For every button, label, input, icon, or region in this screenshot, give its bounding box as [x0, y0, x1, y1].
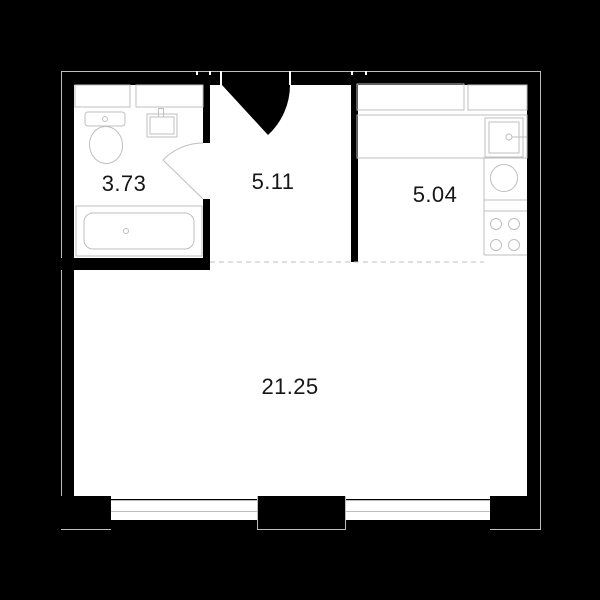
bathroom-cabinet-icon	[136, 85, 203, 107]
kitchen-area-label: 5.04	[413, 182, 457, 208]
floor-plan[interactable]: 3.73 5.11 5.04 21.25	[0, 0, 600, 600]
living-room-area-label: 21.25	[261, 374, 318, 400]
refrigerator-icon	[491, 165, 518, 192]
stove-burner-icon	[509, 240, 520, 251]
kitchen-counter-icon	[357, 115, 527, 158]
bathtub-drain-icon	[124, 229, 129, 234]
fixtures-layer	[0, 0, 600, 600]
toilet-tank-icon	[85, 112, 125, 126]
bathroom-cabinet-icon	[75, 85, 130, 107]
hallway-area-label: 5.11	[252, 169, 295, 195]
kitchen-faucet-icon	[506, 134, 512, 140]
stove-burner-icon	[509, 219, 520, 230]
toilet-button-icon	[103, 117, 108, 122]
kitchen-cabinet-icon	[468, 85, 527, 110]
bathroom-area-label: 3.73	[102, 171, 146, 197]
bathroom-door-leaf-icon	[163, 160, 203, 199]
bathroom-sink-basin-icon	[150, 117, 174, 134]
entry-door-icon	[222, 85, 290, 135]
bathroom-faucet-icon	[159, 109, 164, 118]
bathroom-door-arc-icon	[163, 143, 203, 160]
kitchen-cabinet-icon	[357, 84, 464, 110]
stove-burner-icon	[491, 240, 502, 251]
bathtub-basin-icon	[84, 213, 194, 249]
stove-burner-icon	[491, 219, 502, 230]
toilet-bowl-icon	[88, 125, 125, 165]
